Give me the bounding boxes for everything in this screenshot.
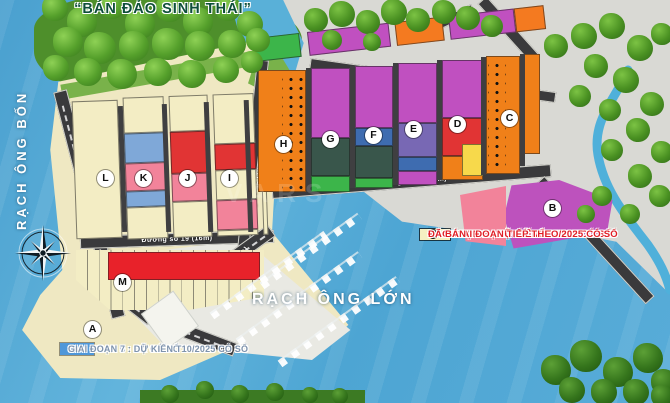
block-a-badge: A [84, 321, 101, 338]
block-g-plots [311, 68, 350, 192]
block-e-badge: E [405, 121, 422, 138]
block-c-side-plots [524, 54, 540, 154]
block-j-badge: J [179, 170, 196, 187]
block-l-badge: L [97, 170, 114, 187]
legend-label: ĐÃ BÁN [428, 229, 466, 240]
block-m-red-plots [108, 252, 260, 280]
block-g-badge: G [322, 131, 339, 148]
block-b-badge: B [544, 200, 561, 217]
block-m-badge: M [114, 274, 131, 291]
mini-road [520, 54, 525, 166]
shore-vegetation [140, 390, 365, 403]
waterway-label-left: RẠCH ÔNG BỐN [14, 70, 29, 230]
block-d-badge: D [449, 116, 466, 133]
plots-orange [514, 5, 547, 32]
block-c-badge: C [501, 110, 518, 127]
compass-rose-icon [12, 222, 74, 284]
waterway-label-main: RẠCH ÔNG LỚN [252, 291, 415, 309]
map-title: “BÁN ĐẢO SINH THÁI” [56, 1, 270, 17]
watermark: VARS [225, 178, 331, 209]
estate-map: Đường số 19 (16m) Đường số 19 (16m) Đườn… [0, 0, 670, 403]
block-h-badge: H [275, 136, 292, 153]
mini-road [437, 60, 442, 180]
block-f-badge: F [365, 127, 382, 144]
mini-road [350, 66, 355, 188]
mini-road [306, 68, 311, 192]
block-k-badge: K [135, 170, 152, 187]
mini-road-9 [393, 63, 398, 185]
mini-road [481, 57, 486, 175]
block-h-sold-dots [282, 72, 304, 190]
legend-label: GIAI ĐOẠN 7 : DỰ KIẾN T10/2025 CÓ SỔ [68, 344, 248, 354]
block-l-plots [72, 100, 123, 240]
